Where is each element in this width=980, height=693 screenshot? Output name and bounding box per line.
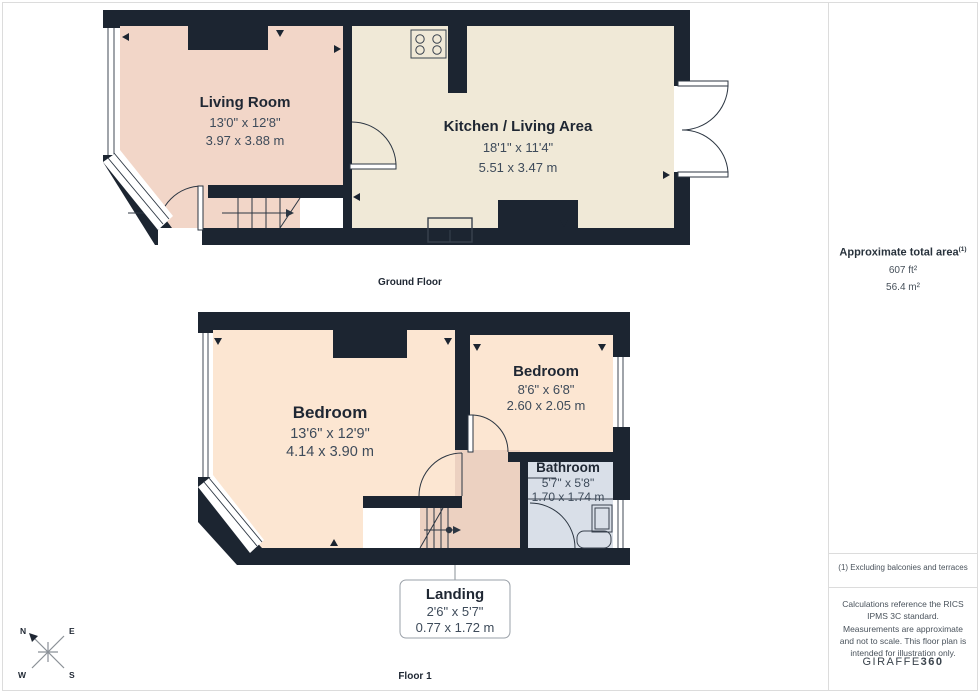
stair-wall-first (363, 496, 462, 508)
divider-wall-lower (343, 167, 352, 245)
compass-w: W (18, 670, 27, 680)
bathroom-dims-imperial: 5'7" x 5'8" (542, 476, 594, 490)
bedroom2-door-panel (468, 415, 473, 452)
compass-n: N (20, 626, 26, 636)
first-floor-label: Floor 1 (398, 671, 432, 682)
landing-callout: Landing 2'6" x 5'7" 0.77 x 1.72 m (400, 565, 510, 638)
ground-floor-label: Ground Floor (378, 277, 442, 288)
divider-wall-upper (343, 26, 352, 122)
total-area-metric: 56.4 m² (829, 282, 977, 293)
landing-dims-imperial: 2'6" x 5'7" (427, 604, 484, 619)
bedroom2-label: Bedroom (513, 363, 579, 380)
kitchen-label: Kitchen / Living Area (444, 118, 593, 135)
bathroom-window (613, 500, 630, 548)
french-doors (674, 81, 728, 177)
footnote-text: (1) Excluding balconies and terraces (829, 563, 977, 572)
bedroom1-dims-metric: 4.14 x 3.90 m (286, 444, 374, 460)
total-area-title: Approximate total area(1) (829, 246, 977, 259)
living-room-dims-imperial: 13'0" x 12'8" (209, 115, 281, 130)
kitchen-door-panel (350, 164, 396, 169)
first-floor-plan: Bedroom 13'6" x 12'9" 4.14 x 3.90 m Bedr… (190, 300, 650, 693)
compass-s: S (69, 670, 75, 680)
bedroom-divider-wall (455, 330, 468, 450)
stair-wall (208, 185, 343, 198)
bedroom1-dims-imperial: 13'6" x 12'9" (290, 426, 370, 442)
compass-e: E (69, 626, 75, 636)
brand-name: GIRAFFE (862, 656, 920, 668)
bedroom2-dims-imperial: 8'6" x 6'8" (518, 382, 575, 397)
brand-logo: GIRAFFE360 (829, 656, 977, 668)
bedroom1-window (198, 333, 213, 477)
landing-dims-metric: 0.77 x 1.72 m (416, 620, 495, 635)
chimney-breast (188, 26, 268, 50)
living-room-label: Living Room (200, 94, 291, 111)
living-room-dims-metric: 3.97 x 3.88 m (206, 133, 285, 148)
bathroom-label: Bathroom (536, 460, 600, 475)
disclaimer-text: Calculations reference the RICS IPMS 3C … (829, 598, 977, 660)
stair-void (300, 198, 343, 228)
kitchen-dims-imperial: 18'1" x 11'4" (483, 140, 554, 155)
front-door-opening (158, 228, 202, 245)
stair-void-first (363, 508, 420, 548)
total-area-imperial: 607 ft² (829, 265, 977, 276)
kitchen-wall-stub (448, 26, 467, 93)
info-sidebar: Approximate total area(1) 607 ft² 56.4 m… (828, 2, 977, 691)
bedroom2-window (613, 357, 630, 427)
ground-floor-plan: Living Room 13'0" x 12'8" 3.97 x 3.88 m … (95, 0, 740, 300)
bathroom-left-wall (520, 452, 528, 505)
floorplan-page: Living Room 13'0" x 12'8" 3.97 x 3.88 m … (0, 0, 980, 693)
front-door-panel (198, 186, 203, 230)
living-window (103, 28, 120, 155)
bedroom2-dims-metric: 2.60 x 2.05 m (507, 398, 586, 413)
total-area-footnote-ref: (1) (959, 246, 967, 253)
total-area-block: Approximate total area(1) 607 ft² 56.4 m… (829, 246, 977, 293)
bathroom-dims-metric: 1.70 x 1.74 m (532, 490, 605, 504)
bedroom1-label: Bedroom (293, 403, 368, 422)
kitchen-dims-metric: 5.51 x 3.47 m (479, 160, 558, 175)
compass-rose-icon: N E W S (10, 616, 86, 688)
total-area-title-text: Approximate total area (839, 247, 958, 259)
brand-suffix: 360 (921, 656, 944, 668)
sidebar-divider-top (829, 553, 977, 554)
sidebar-divider-bottom (829, 587, 977, 588)
landing-label: Landing (426, 586, 484, 603)
bedroom1-chimney (333, 330, 407, 358)
